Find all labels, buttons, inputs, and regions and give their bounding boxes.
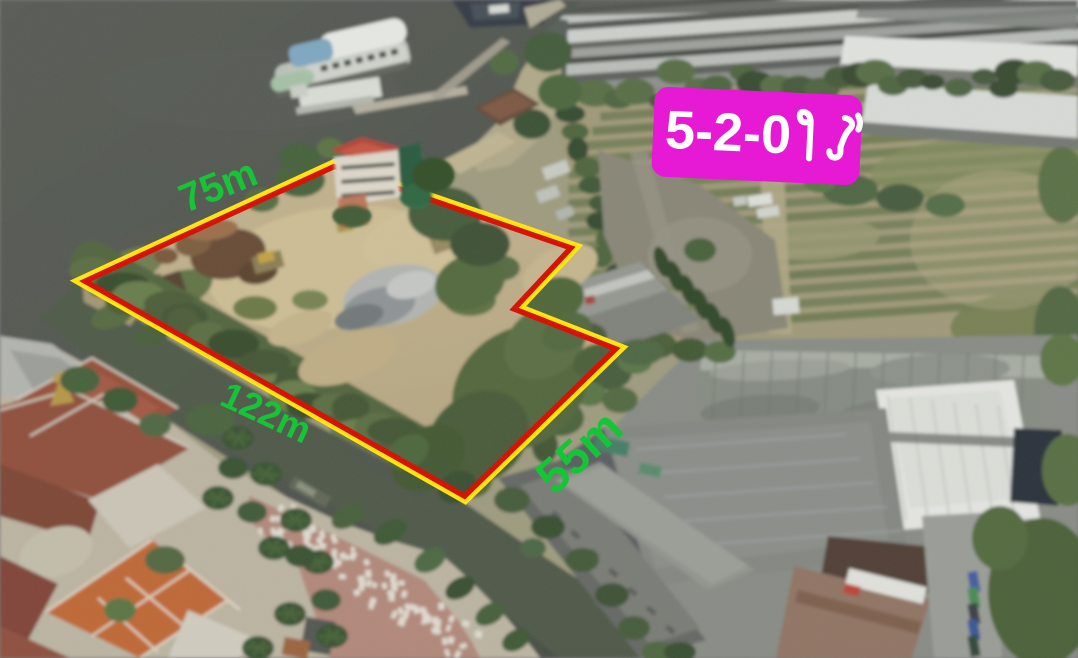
svg-text:5-2-0: 5-2-0 <box>664 100 793 166</box>
